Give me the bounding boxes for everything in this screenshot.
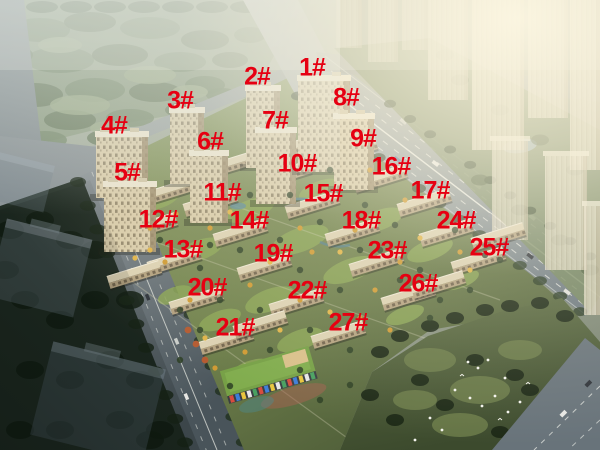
site-aerial-rendering: 1#2#3#4#5#6#7#8#9#10#11#12#13#14#15#16#1…	[0, 0, 600, 450]
aerial-photo	[0, 0, 600, 450]
